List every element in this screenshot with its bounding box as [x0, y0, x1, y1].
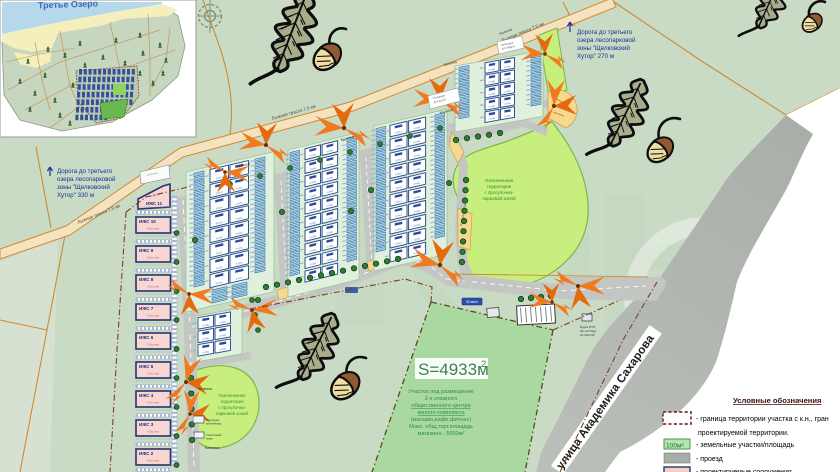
svg-text:Дорога до третьего: Дорога до третьего	[57, 168, 113, 175]
svg-text:Участок под размещение: Участок под размещение	[408, 389, 473, 395]
svg-text:ИЖС 10: ИЖС 10	[139, 219, 156, 224]
svg-text:10,18x3,06: 10,18x3,06	[580, 333, 595, 337]
svg-text:4,5сотки: 4,5сотки	[147, 459, 159, 463]
svg-text:Калитка: Калитка	[198, 387, 213, 391]
svg-text:Хутор" 330 м: Хутор" 330 м	[57, 192, 94, 199]
svg-text:парковой зоной: парковой зоной	[216, 411, 248, 416]
svg-text:- земельные участки/площадь: - земельные участки/площадь	[696, 442, 794, 449]
svg-text:ИЖС 8: ИЖС 8	[139, 277, 154, 282]
svg-text:озера лесопарковой: озера лесопарковой	[577, 37, 636, 44]
svg-text:общественного центра: общественного центра	[411, 403, 471, 409]
svg-text:ИЖС 9: ИЖС 9	[139, 248, 154, 253]
svg-text:пункт: пункт	[206, 437, 214, 441]
svg-text:S=4933м: S=4933м	[418, 360, 489, 379]
svg-text:Хутор" 270 м: Хутор" 270 м	[577, 53, 614, 60]
svg-text:Калитка: Калитка	[205, 446, 220, 450]
svg-text:контейнеры: контейнеры	[206, 422, 221, 426]
svg-text:ИЖС 4: ИЖС 4	[139, 393, 154, 398]
svg-text:ИЖС 6: ИЖС 6	[139, 335, 154, 340]
svg-text:Макс. общ.торг.площадь: Макс. общ.торг.площадь	[409, 424, 473, 430]
svg-text:Дорога до третьего: Дорога до третьего	[577, 29, 633, 36]
svg-text:2-х этажного: 2-х этажного	[425, 396, 458, 402]
svg-text:4,5сотки: 4,5сотки	[147, 401, 159, 405]
svg-text:ИЖС 5: ИЖС 5	[139, 364, 154, 369]
svg-text:зоны "Щелковский: зоны "Щелковский	[57, 184, 110, 191]
svg-text:ИЖС 11: ИЖС 11	[146, 201, 163, 206]
svg-text:4,5сотки: 4,5сотки	[147, 285, 159, 289]
svg-text:жилого комплекса: жилого комплекса	[417, 410, 465, 416]
svg-text:- граница территории участка с: - граница территории участка с к.н., гра…	[696, 416, 829, 423]
svg-text:40 мест: 40 мест	[466, 300, 479, 304]
svg-text:Условные обозначения: Условные обозначения	[733, 396, 821, 405]
svg-text:ИЖС 2: ИЖС 2	[139, 451, 154, 456]
svg-text:территория: территория	[487, 184, 512, 189]
svg-text:- проезд: - проезд	[696, 456, 723, 463]
svg-text:с прогулочно-: с прогулочно-	[218, 405, 246, 410]
svg-text:ИЖС 7: ИЖС 7	[139, 306, 154, 311]
svg-text:4,5сотки: 4,5сотки	[147, 343, 159, 347]
svg-text:парковой зоной: парковой зоной	[482, 195, 516, 201]
svg-text:ИЖС 3: ИЖС 3	[139, 422, 154, 427]
svg-text:магазина - 5000м²: магазина - 5000м²	[418, 431, 465, 437]
svg-text:зоны "Щелковский: зоны "Щелковский	[577, 45, 630, 52]
svg-text:Озелененная: Озелененная	[485, 178, 514, 183]
svg-text:4,5сотки: 4,5сотки	[147, 314, 159, 318]
svg-text:с прогулочно-: с прогулочно-	[484, 190, 514, 195]
svg-text:озера лесопарковой: озера лесопарковой	[57, 176, 116, 183]
svg-text:(магазин,кафе,фитнес): (магазин,кафе,фитнес)	[411, 417, 471, 423]
svg-text:проектируемой территории.: проектируемой территории.	[698, 429, 789, 437]
svg-text:Озелененная: Озелененная	[218, 393, 246, 398]
svg-text:4,5сотки: 4,5сотки	[147, 372, 159, 376]
svg-text:территория: территория	[220, 399, 244, 404]
svg-text:4,5сотки: 4,5сотки	[147, 256, 159, 260]
svg-text:2: 2	[481, 359, 486, 370]
svg-text:100м²: 100м²	[666, 443, 685, 450]
svg-text:4,5сотки: 4,5сотки	[147, 227, 159, 231]
svg-text:4,5сотки: 4,5сотки	[147, 430, 159, 434]
